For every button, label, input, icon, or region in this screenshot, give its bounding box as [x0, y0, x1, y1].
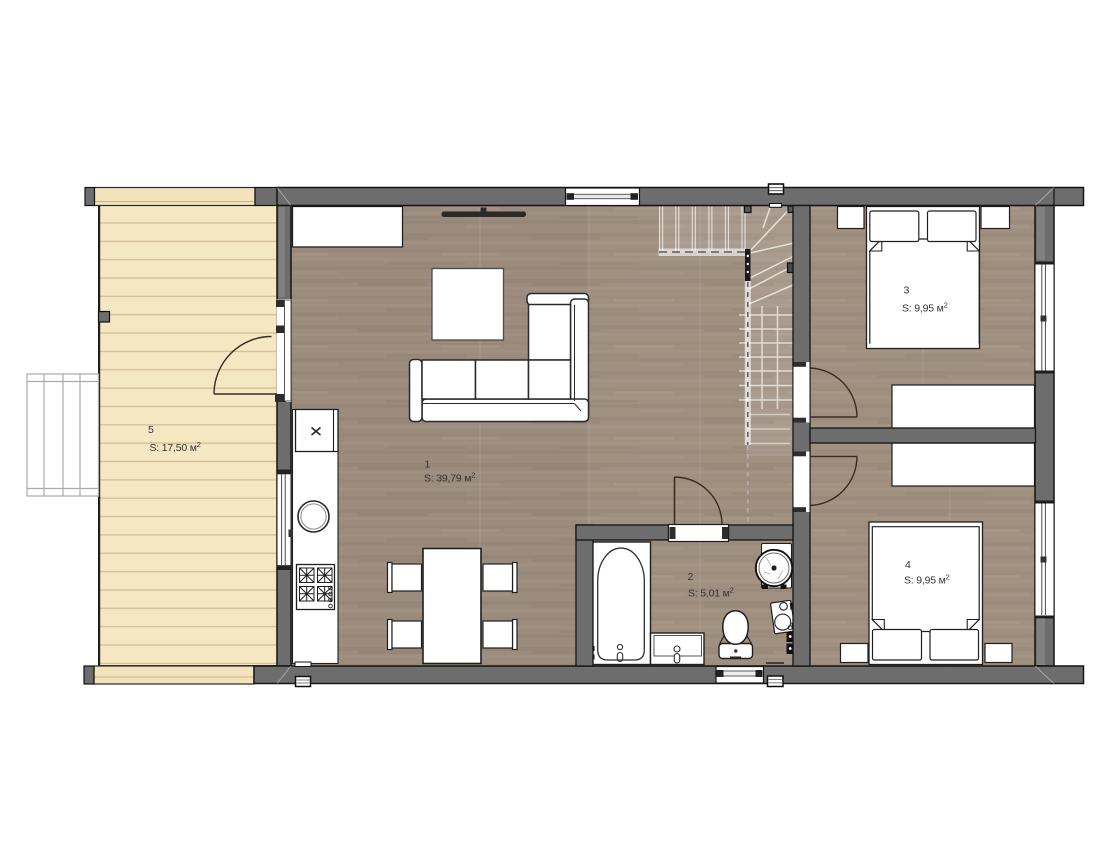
svg-text:S: 39,79 м2: S: 39,79 м2: [424, 470, 475, 484]
svg-text:S: 17,50 м2: S: 17,50 м2: [150, 440, 201, 454]
svg-text:4: 4: [905, 559, 911, 571]
svg-text:3: 3: [904, 285, 910, 297]
svg-text:1: 1: [425, 459, 431, 471]
svg-text:S: 9,95 м2: S: 9,95 м2: [904, 572, 950, 586]
svg-text:2: 2: [688, 571, 694, 583]
svg-text:S: 5,01 м2: S: 5,01 м2: [688, 585, 734, 599]
svg-text:S: 9,95 м2: S: 9,95 м2: [902, 300, 948, 314]
svg-text:5: 5: [148, 424, 154, 436]
